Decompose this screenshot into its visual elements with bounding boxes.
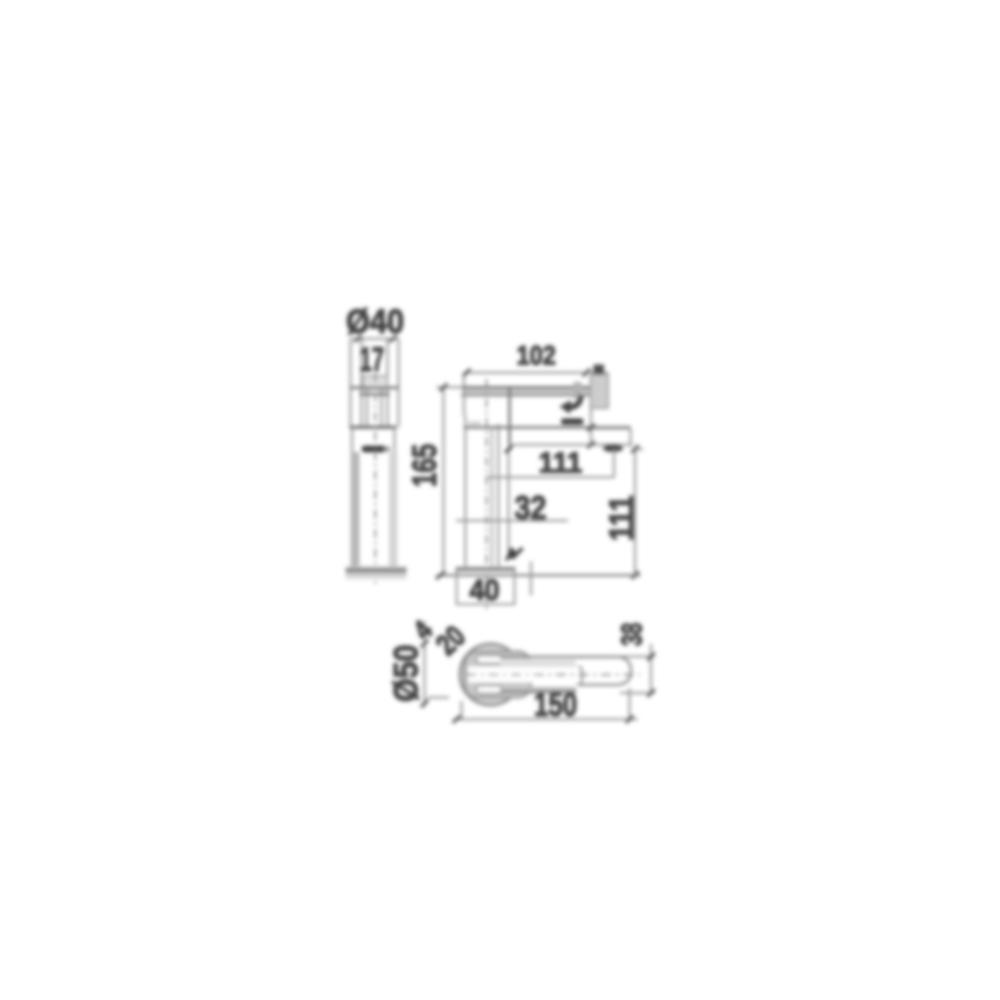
svg-text:111: 111: [539, 447, 583, 479]
svg-text:40: 40: [470, 574, 500, 608]
svg-text:38: 38: [616, 623, 648, 646]
svg-text:32: 32: [515, 489, 547, 526]
svg-text:165: 165: [405, 444, 443, 487]
svg-text:102: 102: [517, 341, 556, 371]
svg-text:Ø50: Ø50: [387, 645, 425, 702]
svg-text:17: 17: [360, 341, 385, 379]
svg-text:Ø40: Ø40: [346, 301, 404, 340]
svg-text:111: 111: [602, 495, 641, 541]
svg-text:150: 150: [534, 685, 577, 723]
